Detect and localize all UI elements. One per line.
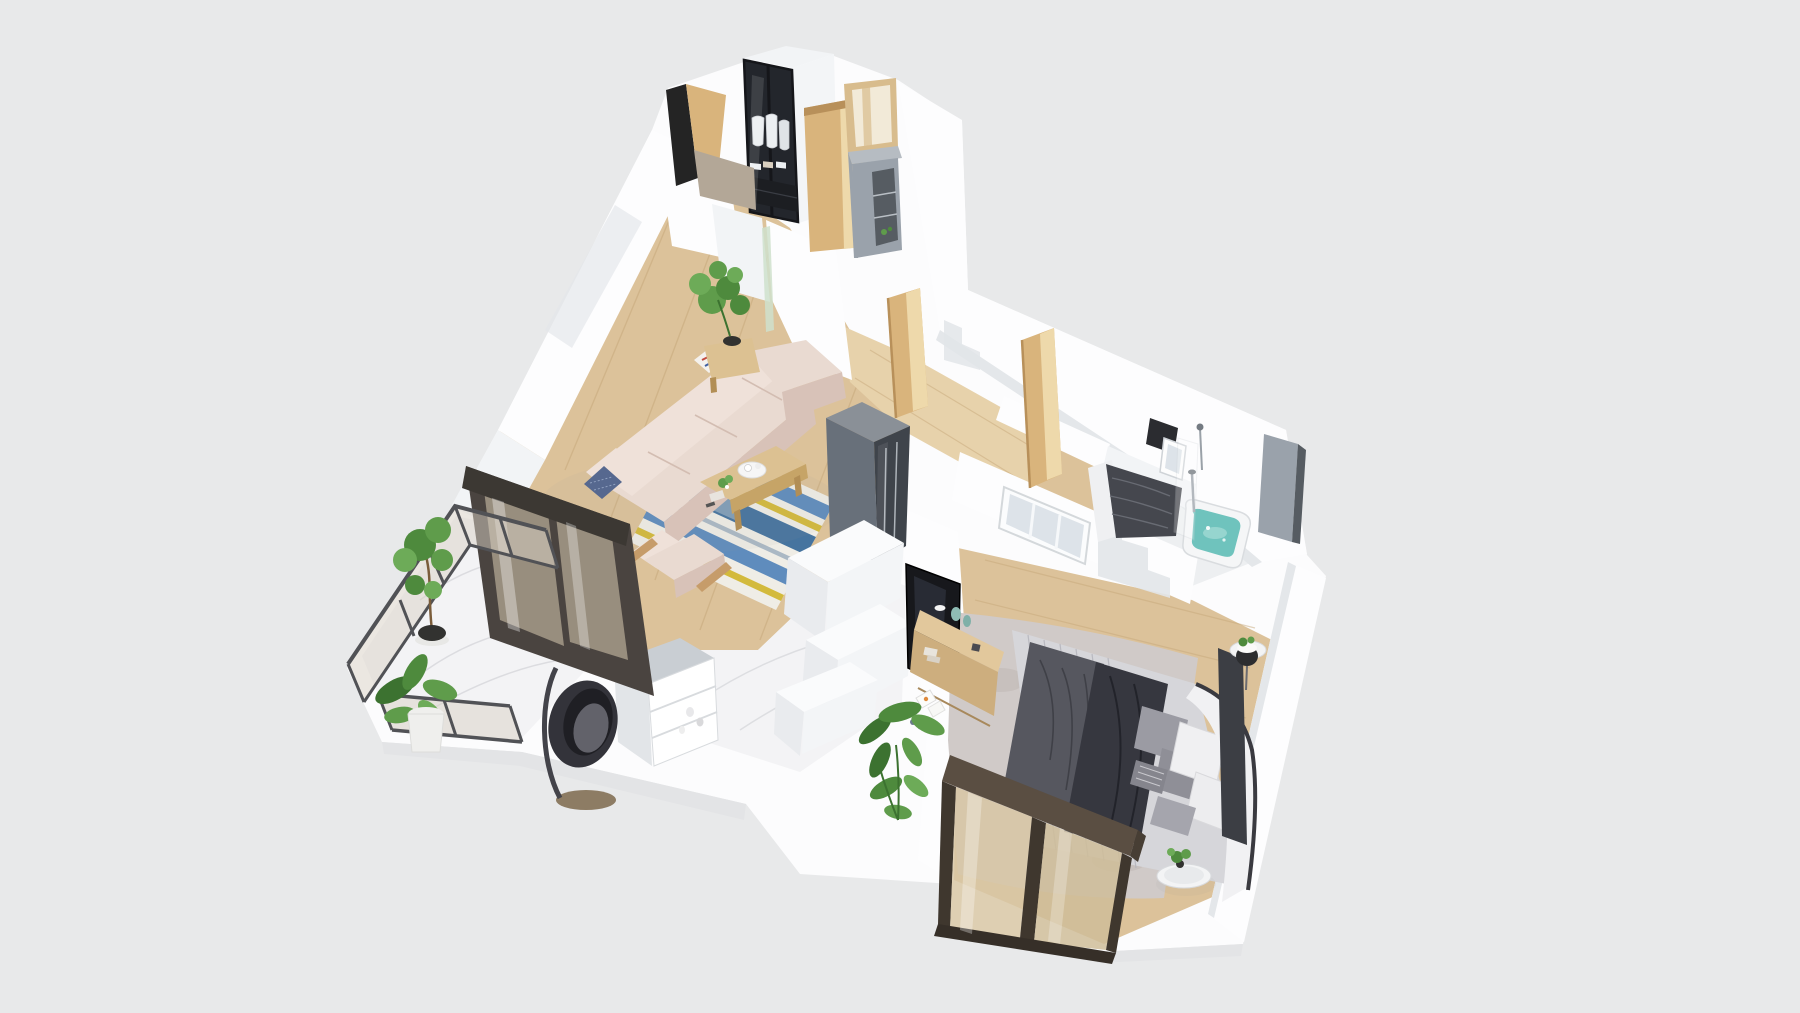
monstera-pot [723, 336, 741, 346]
dark-bowl-pot [418, 625, 446, 641]
mirrored-doorway [844, 78, 898, 154]
teal-vase-a [951, 607, 961, 621]
bathroom-gray-panel [1258, 434, 1298, 542]
serving-tray [738, 462, 766, 478]
floorplan-canvas [0, 0, 1800, 1013]
apartment-render [0, 0, 1800, 1013]
white-planter [408, 714, 444, 752]
shower-glass-screen [1174, 438, 1198, 540]
gray-shoe-cabinet [848, 146, 902, 258]
teal-vase-b [963, 615, 971, 627]
